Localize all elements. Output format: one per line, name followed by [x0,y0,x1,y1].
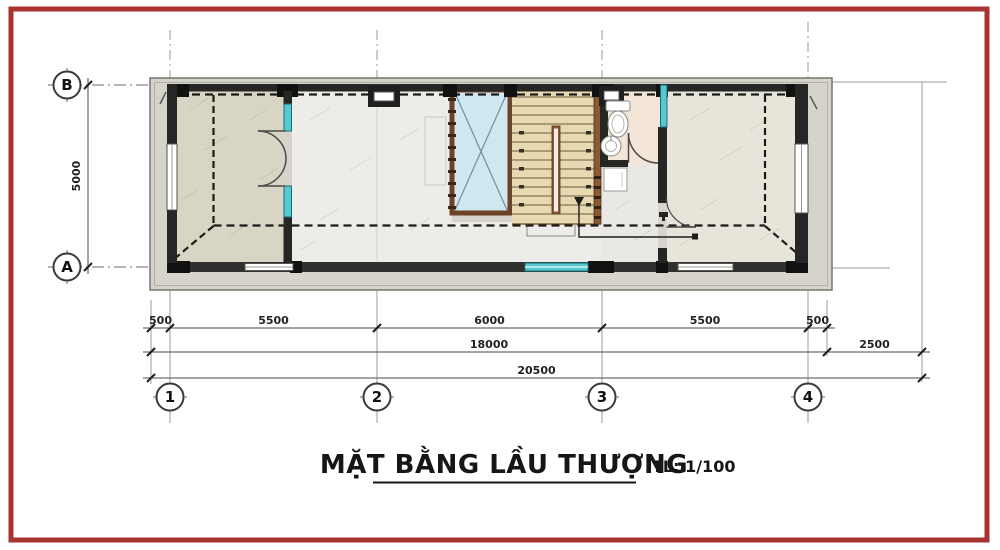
ac-unit-left [368,86,400,107]
dim-20500: 20500 [517,364,556,377]
right-wall-window [795,144,808,213]
door-sidelight-top [284,104,292,131]
sink [601,136,621,156]
toilet [606,101,630,137]
col-bubble-2: 2 [364,384,391,411]
col-bubble-4: 4 [795,384,822,411]
svg-text:1: 1 [165,388,175,406]
skylight-void [448,90,510,213]
stair-center-railing-core [554,129,558,212]
page-title: MẶT BẰNG LẦU THƯỢNG [320,444,688,480]
bottom-window-right [678,264,733,271]
door-sidelight-bottom [284,186,292,217]
col-bubble-3: 3 [589,384,616,411]
col-bubble-1: 1 [157,384,184,411]
floor-plan-drawing: B A 1 2 3 4 [0,0,1000,550]
svg-text:A: A [61,258,73,276]
svg-text:2: 2 [372,388,382,406]
dim-2500: 2500 [859,338,890,351]
dim-5000: 5000 [70,160,83,191]
dim-500-left: 500 [149,314,172,327]
svg-text:3: 3 [597,388,607,406]
door-threshold-stem [662,217,665,221]
dim-18000: 18000 [470,338,509,351]
dim-6000: 6000 [474,314,505,327]
door-threshold-mark [659,212,668,217]
dim-5500-left: 5500 [258,314,289,327]
title-block: MẶT BẰNG LẦU THƯỢNG TL: 1/100 [320,444,736,483]
dim-5500-right: 5500 [690,314,721,327]
dim-500-right: 500 [806,314,829,327]
terrace-floor [177,91,284,263]
left-wall-window [167,144,177,210]
row-bubble-A: A [54,254,81,281]
bottom-window-teal [525,263,588,271]
svg-text:4: 4 [803,388,813,406]
washing-machine [604,168,627,191]
stair-side-railing [594,91,601,224]
bottom-window-left [245,264,293,271]
row-bubble-B: B [54,72,81,99]
bathroom-window [661,85,668,127]
scale-label: TL: 1/100 [652,457,735,476]
svg-text:B: B [61,76,72,94]
